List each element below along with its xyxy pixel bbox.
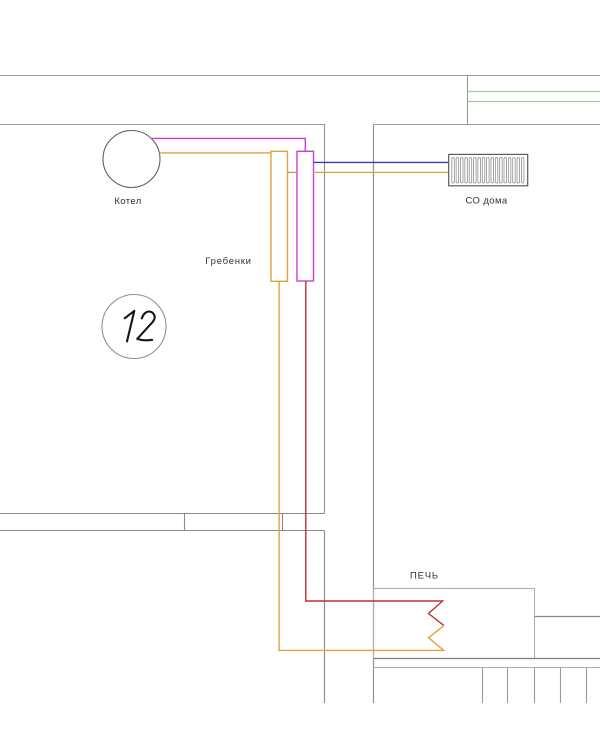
svg-text:СО дома: СО дома (465, 196, 507, 207)
svg-text:Котел: Котел (114, 196, 141, 207)
svg-text:Гребенки: Гребенки (205, 256, 251, 267)
svg-text:ПЕЧЬ: ПЕЧЬ (410, 571, 439, 582)
